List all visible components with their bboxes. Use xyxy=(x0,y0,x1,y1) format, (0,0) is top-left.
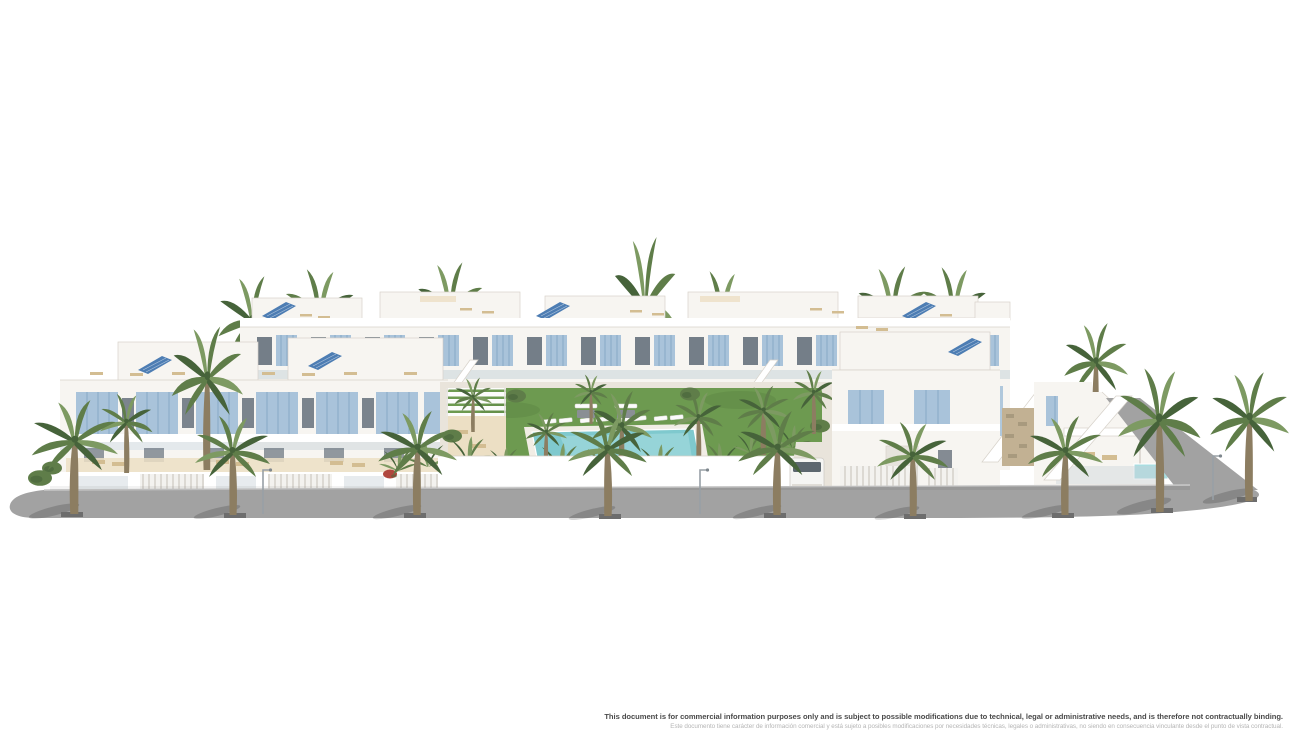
footer-disclaimer: This document is for commercial informat… xyxy=(604,712,1283,731)
glass-rail xyxy=(1056,466,1164,484)
floor-slab xyxy=(832,424,1000,431)
disclaimer-text-en: This document is for commercial informat… xyxy=(604,712,1283,722)
roof-box xyxy=(975,302,1010,320)
roof-box xyxy=(840,332,990,370)
page: This document is for commercial informat… xyxy=(0,0,1290,755)
parapet xyxy=(240,318,1010,327)
development-rendering xyxy=(0,0,1290,755)
disclaimer-text-es: Este documento tiene carácter de informa… xyxy=(604,723,1283,731)
